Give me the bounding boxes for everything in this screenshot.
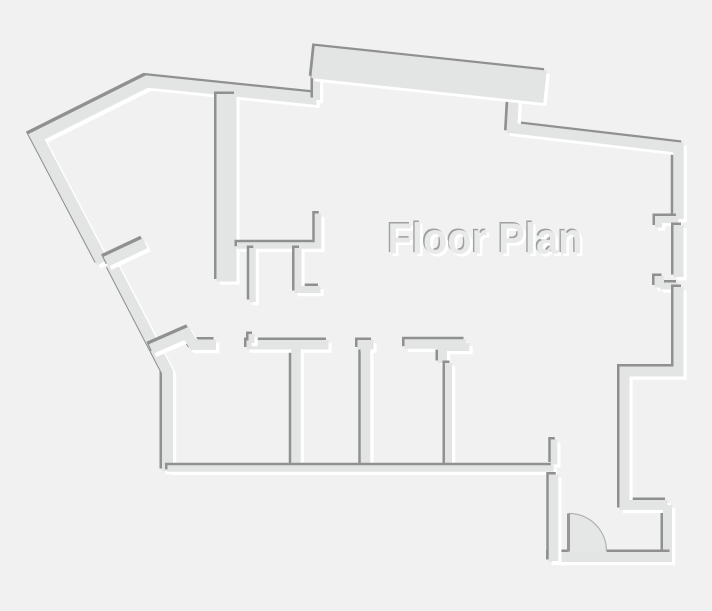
svg-text:Floor Plan: Floor Plan: [388, 215, 583, 264]
